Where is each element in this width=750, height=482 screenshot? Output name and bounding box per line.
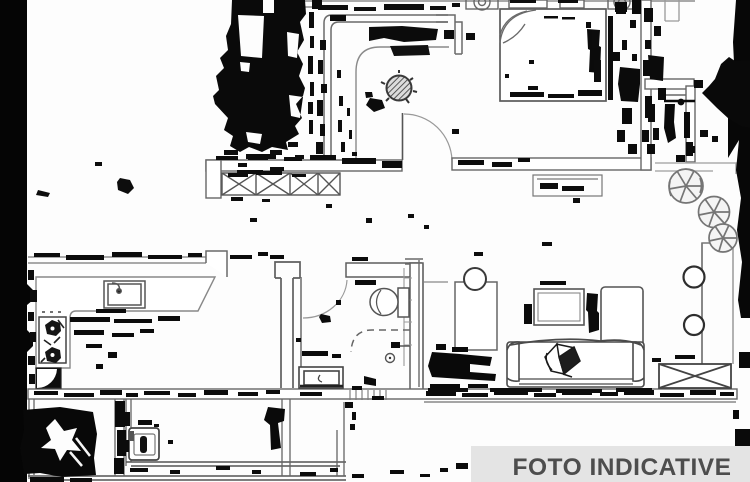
svg-text:FOTO INDICATIVE: FOTO INDICATIVE <box>513 454 732 481</box>
